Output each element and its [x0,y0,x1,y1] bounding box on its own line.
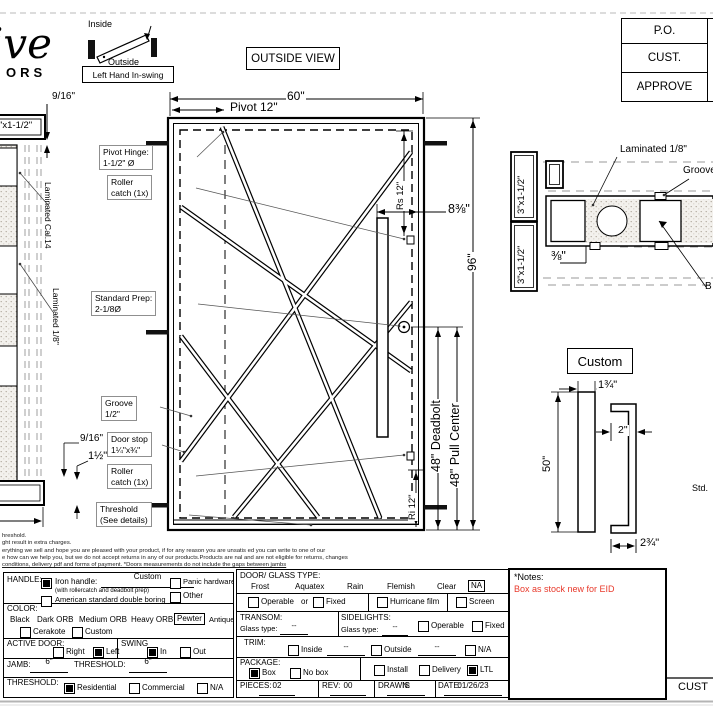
other-handle-checkbox[interactable] [170,592,181,603]
jamb-value[interactable]: 6" [30,658,68,673]
color-option-dark-orb: Dark ORB [37,616,73,624]
approval-row-cust: CUST. [622,44,707,73]
trim-inside-value[interactable]: -- [327,643,365,656]
residential-checkbox[interactable] [64,683,75,694]
threshold-na-checkbox[interactable] [197,683,208,694]
package-box-label: Box [262,669,276,677]
trim-inside-checkbox[interactable] [288,645,299,656]
color-option-pewter-selected[interactable]: Pewter [174,613,205,625]
drawing-sheet: ive ORS Inside Outside Left Hand In-swin… [0,0,713,713]
glass-option-na-selected[interactable]: NA [468,580,485,592]
outside-view-label: OUTSIDE VIEW [246,47,340,70]
drawn-value[interactable]: IS [387,682,425,696]
logo-script: ive [0,22,52,66]
transom-glass-value[interactable]: -- [280,622,308,635]
hurricane-film-label: Hurricane film [390,598,439,606]
callout-groove-line1: Groove [105,398,133,409]
handle-dim-50: 50" [542,455,554,473]
callout-roller-top-line1: Roller [111,177,148,188]
install-checkbox[interactable] [374,665,385,676]
glass-option-clear: Clear [437,583,456,591]
disclaimer-line1: hreshold. [2,533,348,540]
panic-hardware-checkbox[interactable] [170,578,181,589]
approval-table: P.O. CUST. APPROVE [621,18,713,102]
disclaimer-line4: e how can we help you, but we do not acc… [2,555,348,562]
color-option-black: Black [10,616,30,624]
custom-color-checkbox[interactable] [72,627,83,638]
glass-option-frost: Frost [251,583,269,591]
trim-na-label: N/A [478,646,491,654]
callout-threshold-line1: Threshold [100,504,148,515]
delivery-label: Delivery [432,666,461,674]
callout-roller-bottom-line1: Roller [111,466,148,477]
callout-pivot-hinge: Pivot Hinge: 1-1/2" Ø [99,145,153,170]
callout-roller-catch-bottom: Roller catch (1x) [107,464,152,489]
form-middle-block: DOOR/ GLASS TYPE: Frost Aquatex Rain Fle… [236,569,512,698]
section-cut-label: B [705,282,712,293]
sidelights-operable-label: Operable [431,622,464,630]
sidelights-label: SIDELIGHTS: [341,614,391,622]
logo-word: ORS [6,66,46,80]
callout-roller-catch-top: Roller catch (1x) [107,175,152,200]
dim-pivot-12: Pivot 12" [229,101,279,114]
callout-prep-line2: 2-1/8Ø [95,304,152,315]
delivery-checkbox[interactable] [419,665,430,676]
approval-row-approve: APPROVE [622,73,707,101]
side-dim-916: 9/16" [80,434,103,445]
hurricane-film-checkbox[interactable] [377,597,388,608]
glass-operable-checkbox[interactable] [248,597,259,608]
dim-rs-12: Rs 12" [396,181,406,211]
handle-label: HANDLE: [7,576,42,584]
commercial-label: Commercial [142,684,185,692]
glass-operable-label: Operable [261,598,294,606]
callout-door-stop: Door stop 1¼"x¾" [107,432,152,457]
sidelights-fixed-checkbox[interactable] [472,621,483,632]
dim-handle-offset: 8⅜" [448,203,470,216]
swing-in-label: In [160,648,167,656]
callout-stop-line1: Door stop [111,434,148,445]
disclaimer-line2: ght result in extra charges. [2,540,348,547]
trim-outside-value[interactable]: -- [418,643,456,656]
trim-inside-label: Inside [301,646,322,654]
date-value[interactable]: 01/26/23 [444,682,502,696]
disclaimer: hreshold. ght result in extra charges. e… [2,533,348,569]
callout-stop-line2: 1¼"x¾" [111,445,148,456]
side-laminated-18: Laminated 1/8" [51,288,60,345]
iron-handle-label: Iron handle: [55,578,97,586]
callout-threshold-line2: (See details) [100,515,148,526]
glass-fixed-label: Fixed [326,598,346,606]
dim-ri-12: Ri 12" [408,493,418,521]
american-boring-label: American standard double boring [55,596,166,604]
sidelights-fixed-label: Fixed [485,622,505,630]
dim-deadbolt-48: 48" Deadbolt [430,399,443,473]
handle-detail-title: Custom [567,348,633,374]
dim-width-60: 60" [286,90,306,103]
callout-standard-prep: Standard Prep: 2-1/8Ø [91,291,156,316]
notes-title: *Notes: [514,573,544,582]
glass-type-label: DOOR/ GLASS TYPE: [240,572,320,580]
sidelights-glass-type-label: Glass type: [341,626,379,634]
residential-label: Residential [77,684,117,692]
active-left-checkbox[interactable] [93,647,104,658]
callout-groove: Groove 1/2" [101,396,137,421]
notes-block: *Notes: Box as stock new for EID [508,568,667,700]
handle-dim-134: 1¾" [597,380,618,392]
color-option-antique-gold: Antique gold [209,616,234,624]
sidelights-operable-checkbox[interactable] [418,621,429,632]
section-dim-38: ⅜" [551,250,566,263]
cerakote-label: Cerakote [33,628,65,636]
package-no-box-checkbox[interactable] [290,668,301,679]
callout-pivot-hinge-line2: 1-1/2" Ø [103,158,149,169]
customer-signature-label: CUST [678,682,708,694]
install-label: Install [387,666,408,674]
approval-row-po: P.O. [622,19,707,44]
callout-pivot-hinge-line1: Pivot Hinge: [103,147,149,158]
transom-label: TRANSOM: [240,614,282,622]
swing-caption: Left Hand In-swing [82,66,174,83]
side-laminated-cal14: Laminated Cal.14 [43,182,52,249]
other-handle-label: Other [183,592,203,600]
cerakote-checkbox[interactable] [20,627,31,638]
side-tube-label: "x1-1/2" [0,121,32,131]
package-label: PACKAGE: [240,659,280,667]
notes-body: Box as stock new for EID [514,585,615,594]
swing-out-label: Out [193,648,206,656]
handle-dim-234: 2¾" [640,538,659,550]
package-no-box-label: No box [303,669,328,677]
pieces-value[interactable]: 02 [259,682,295,696]
threshold-na-label: N/A [210,684,223,692]
color-option-medium-orb: Medium ORB [79,616,127,624]
trim-outside-label: Outside [384,646,412,654]
ltl-label: LTL [480,666,493,674]
swing-label: SWING [121,640,148,648]
screen-checkbox[interactable] [456,597,467,608]
glass-option-aquatex: Aquatex [295,583,324,591]
custom-color-label: Custom [85,628,113,636]
section-groove-label: Groove [683,166,713,177]
glass-or-label: or [301,598,308,606]
form-left-block: HANDLE: Iron handle: Custom (with roller… [3,572,234,698]
american-boring-checkbox[interactable] [41,596,52,607]
color-option-heavy-orb: Heavy ORB [131,616,173,624]
dim-height-96: 96" [466,252,479,272]
jamb-threshold-label: THRESHOLD: [74,661,126,669]
sidelights-glass-value[interactable]: -- [382,623,408,636]
glass-option-rain: Rain [347,583,363,591]
panic-hardware-label: Panic hardware [183,578,234,586]
side-dim-112: 1½" [88,451,107,463]
jamb-threshold-value[interactable]: 6" [129,658,167,673]
screen-label: Screen [469,598,494,606]
swing-inside-label: Inside [88,20,112,29]
dim-pull-center-48: 48" Pull Center [449,402,462,488]
glass-fixed-checkbox[interactable] [313,597,324,608]
callout-groove-line2: 1/2" [105,409,133,420]
callout-prep-line1: Standard Prep: [95,293,152,304]
rev-value[interactable]: 00 [330,682,366,696]
jamb-label: JAMB: [7,661,31,669]
glass-option-flemish: Flemish [387,583,415,591]
threshold-label: THRESHOLD: [7,679,59,687]
ltl-checkbox[interactable] [467,665,478,676]
handle-std-label: Std. [692,484,708,493]
callout-roller-bottom-line2: catch (1x) [111,477,148,488]
section-tube-label-1: 3"x1-1/2" [517,176,527,214]
handle-dim-2: 2" [617,425,629,436]
trim-na-checkbox[interactable] [465,645,476,656]
section-laminated-label: Laminated 1/8" [620,145,687,156]
callout-roller-top-line2: catch (1x) [111,188,148,199]
trim-outside-checkbox[interactable] [371,645,382,656]
iron-handle-checkbox[interactable] [41,578,52,589]
commercial-checkbox[interactable] [129,683,140,694]
color-label: COLOR: [7,605,38,613]
trim-label: TRIM: [244,639,266,647]
transom-glass-type-label: Glass type: [240,625,278,633]
active-right-label: Right [66,648,85,656]
iron-handle-note: (with rollercatch and deadbolt prep) [55,588,149,594]
active-right-checkbox[interactable] [53,647,64,658]
active-left-label: Left [106,648,119,656]
package-box-checkbox[interactable] [249,668,260,679]
section-tube-label-2: 3"x1-1/2" [517,246,527,284]
side-dim-top: 9/16" [52,92,75,103]
callout-threshold: Threshold (See details) [96,502,152,527]
disclaimer-line3: erything we sell and hope you are please… [2,548,348,555]
swing-out-checkbox[interactable] [180,647,191,658]
